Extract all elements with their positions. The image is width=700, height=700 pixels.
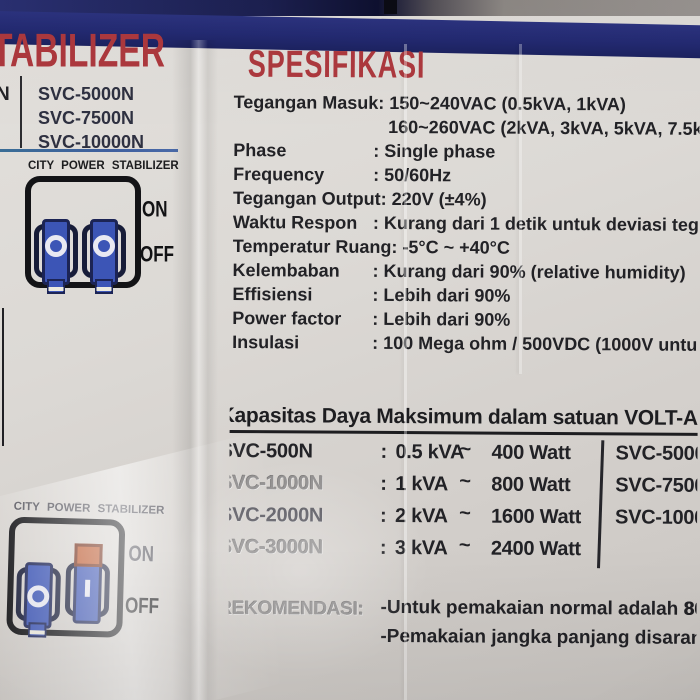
recommendation-strong-text: 80% xyxy=(683,599,699,620)
spec-row: Effisiensi : Lebih dari 90% xyxy=(232,282,700,309)
spec-row: Power factor : Lebih dari 90% xyxy=(232,306,700,333)
capacity-model: SVC-500N xyxy=(228,440,313,464)
spec-label: Phase xyxy=(233,138,373,163)
tilde: ~ xyxy=(459,534,471,557)
capacity-model: SVC-3000N xyxy=(228,536,323,560)
spec-label: Temperatur Ruang xyxy=(233,234,392,259)
capacity-kva: 0.5 kVA xyxy=(395,441,464,464)
recommendation-item: -Untuk pemakaian normal adalah 80% xyxy=(380,593,700,624)
capacity-right-model: SVC-10000N xyxy=(615,506,700,530)
spec-row: Waktu Respon : Kurang dari 1 detik untuk… xyxy=(233,210,700,237)
capacity-table: SVC-500N : 0.5 kVA ~ 400 Watt SVC-5000N … xyxy=(228,440,700,571)
spec-label: Insulasi xyxy=(232,330,372,355)
spec-value: : -5°C ~ +40°C xyxy=(391,235,510,260)
spec-row: Insulasi : 100 Mega ohm / 500VDC (1000V … xyxy=(232,330,700,357)
spec-value-line2: 160~260VAC (2kVA, 3kVA, 5kVA, 7.5kVA xyxy=(388,115,700,141)
spec-label: Effisiensi xyxy=(232,282,372,307)
spec-sheet-photo: TABILIZER N SVC-5000N SVC-7500N SVC-1000… xyxy=(0,0,700,700)
capacity-kva: 2 kVA xyxy=(395,505,448,528)
spec-label: Waktu Respon xyxy=(233,210,373,235)
spec-label: Power factor xyxy=(232,306,372,331)
spec-row: Temperatur Ruang : -5°C ~ +40°C xyxy=(233,234,700,261)
spec-label: Kelembaban xyxy=(233,258,373,283)
capacity-model: SVC-2000N xyxy=(228,504,323,528)
spec-label: Tegangan Output xyxy=(233,186,381,211)
spec-table: Tegangan Masuk : 150~240VAC (0.5kVA, 1kV… xyxy=(232,90,700,357)
colon: : xyxy=(380,537,387,560)
cut-off-text-fragment: N xyxy=(0,84,9,106)
capacity-watt: 800 Watt xyxy=(491,474,570,497)
tilde: ~ xyxy=(459,470,471,493)
off-label: OFF xyxy=(125,594,160,620)
spec-value: : Lebih dari 90% xyxy=(372,307,510,332)
recommendation-label: REKOMENDASI: xyxy=(228,598,364,621)
colon: : xyxy=(380,473,387,496)
tilde: ~ xyxy=(459,438,471,461)
recommendation-text: -Pemakaian jangka panjang disarankan xyxy=(380,626,700,649)
capacity-kva: 3 kVA xyxy=(395,537,448,560)
rocker-switch-off-icon xyxy=(16,561,62,622)
capacity-model: SVC-1000N xyxy=(228,472,323,496)
spec-title: SPESIFIKASI xyxy=(248,42,426,87)
capacity-watt: 1600 Watt xyxy=(491,506,581,530)
tilde: ~ xyxy=(459,502,471,525)
specification-panel: SPESIFIKASI Tegangan Masuk : 150~240VAC … xyxy=(228,40,700,700)
spec-row: Phase : Single phase xyxy=(233,138,700,165)
rocker-switch-on-icon xyxy=(65,556,111,617)
spec-value: : Kurang dari 1 detik untuk deviasi tega… xyxy=(373,211,700,237)
switch-box2-label: CITY POWER STABILIZER xyxy=(14,501,165,517)
spec-label: Tegangan Masuk xyxy=(234,90,379,115)
spec-value: : Lebih dari 90% xyxy=(372,283,510,308)
capacity-right-model: SVC-5000N xyxy=(615,442,700,466)
top-black-mark xyxy=(384,0,397,14)
spec-value: : 100 Mega ohm / 500VDC (1000V untuk xyxy=(372,331,700,357)
spec-row: Tegangan Output : 220V (±4%) xyxy=(233,186,700,213)
spec-value: : 220V (±4%) xyxy=(381,187,487,212)
spec-row: Kelembaban : Kurang dari 90% (relative h… xyxy=(233,258,700,285)
capacity-heading: Kapasitas Daya Maksimum dalam satuan VOL… xyxy=(228,404,700,436)
spec-value: : 50/60Hz xyxy=(373,163,451,187)
capacity-kva: 1 kVA xyxy=(395,473,448,496)
spec-label: Frequency xyxy=(233,162,373,187)
on-label: ON xyxy=(128,542,154,568)
capacity-right-model: SVC-7500N xyxy=(615,474,700,498)
spec-row: Frequency : 50/60Hz xyxy=(233,162,700,189)
spec-row: Tegangan Masuk : 150~240VAC (0.5kVA, 1kV… xyxy=(233,90,700,141)
recommendation-item: -Pemakaian jangka panjang disarankan xyxy=(380,622,700,653)
switch-box2-group: CITY POWER STABILIZER ON OFF xyxy=(0,0,216,700)
colon: : xyxy=(380,505,387,528)
capacity-watt: 2400 Watt xyxy=(491,538,581,562)
capacity-row: SVC-3000N : 3 kVA ~ 2400 Watt xyxy=(228,536,700,571)
spec-value: : Kurang dari 90% (relative humidity) xyxy=(373,259,686,285)
spec-value: : 150~240VAC (0.5kVA, 1kVA) xyxy=(378,91,700,117)
spec-value: : Single phase xyxy=(373,139,495,164)
colon: : xyxy=(380,441,387,464)
recommendation-text: -Untuk pemakaian normal adalah xyxy=(380,597,683,620)
capacity-watt: 400 Watt xyxy=(491,442,570,465)
recommendation-list: -Untuk pemakaian normal adalah 80% -Pema… xyxy=(380,593,700,653)
